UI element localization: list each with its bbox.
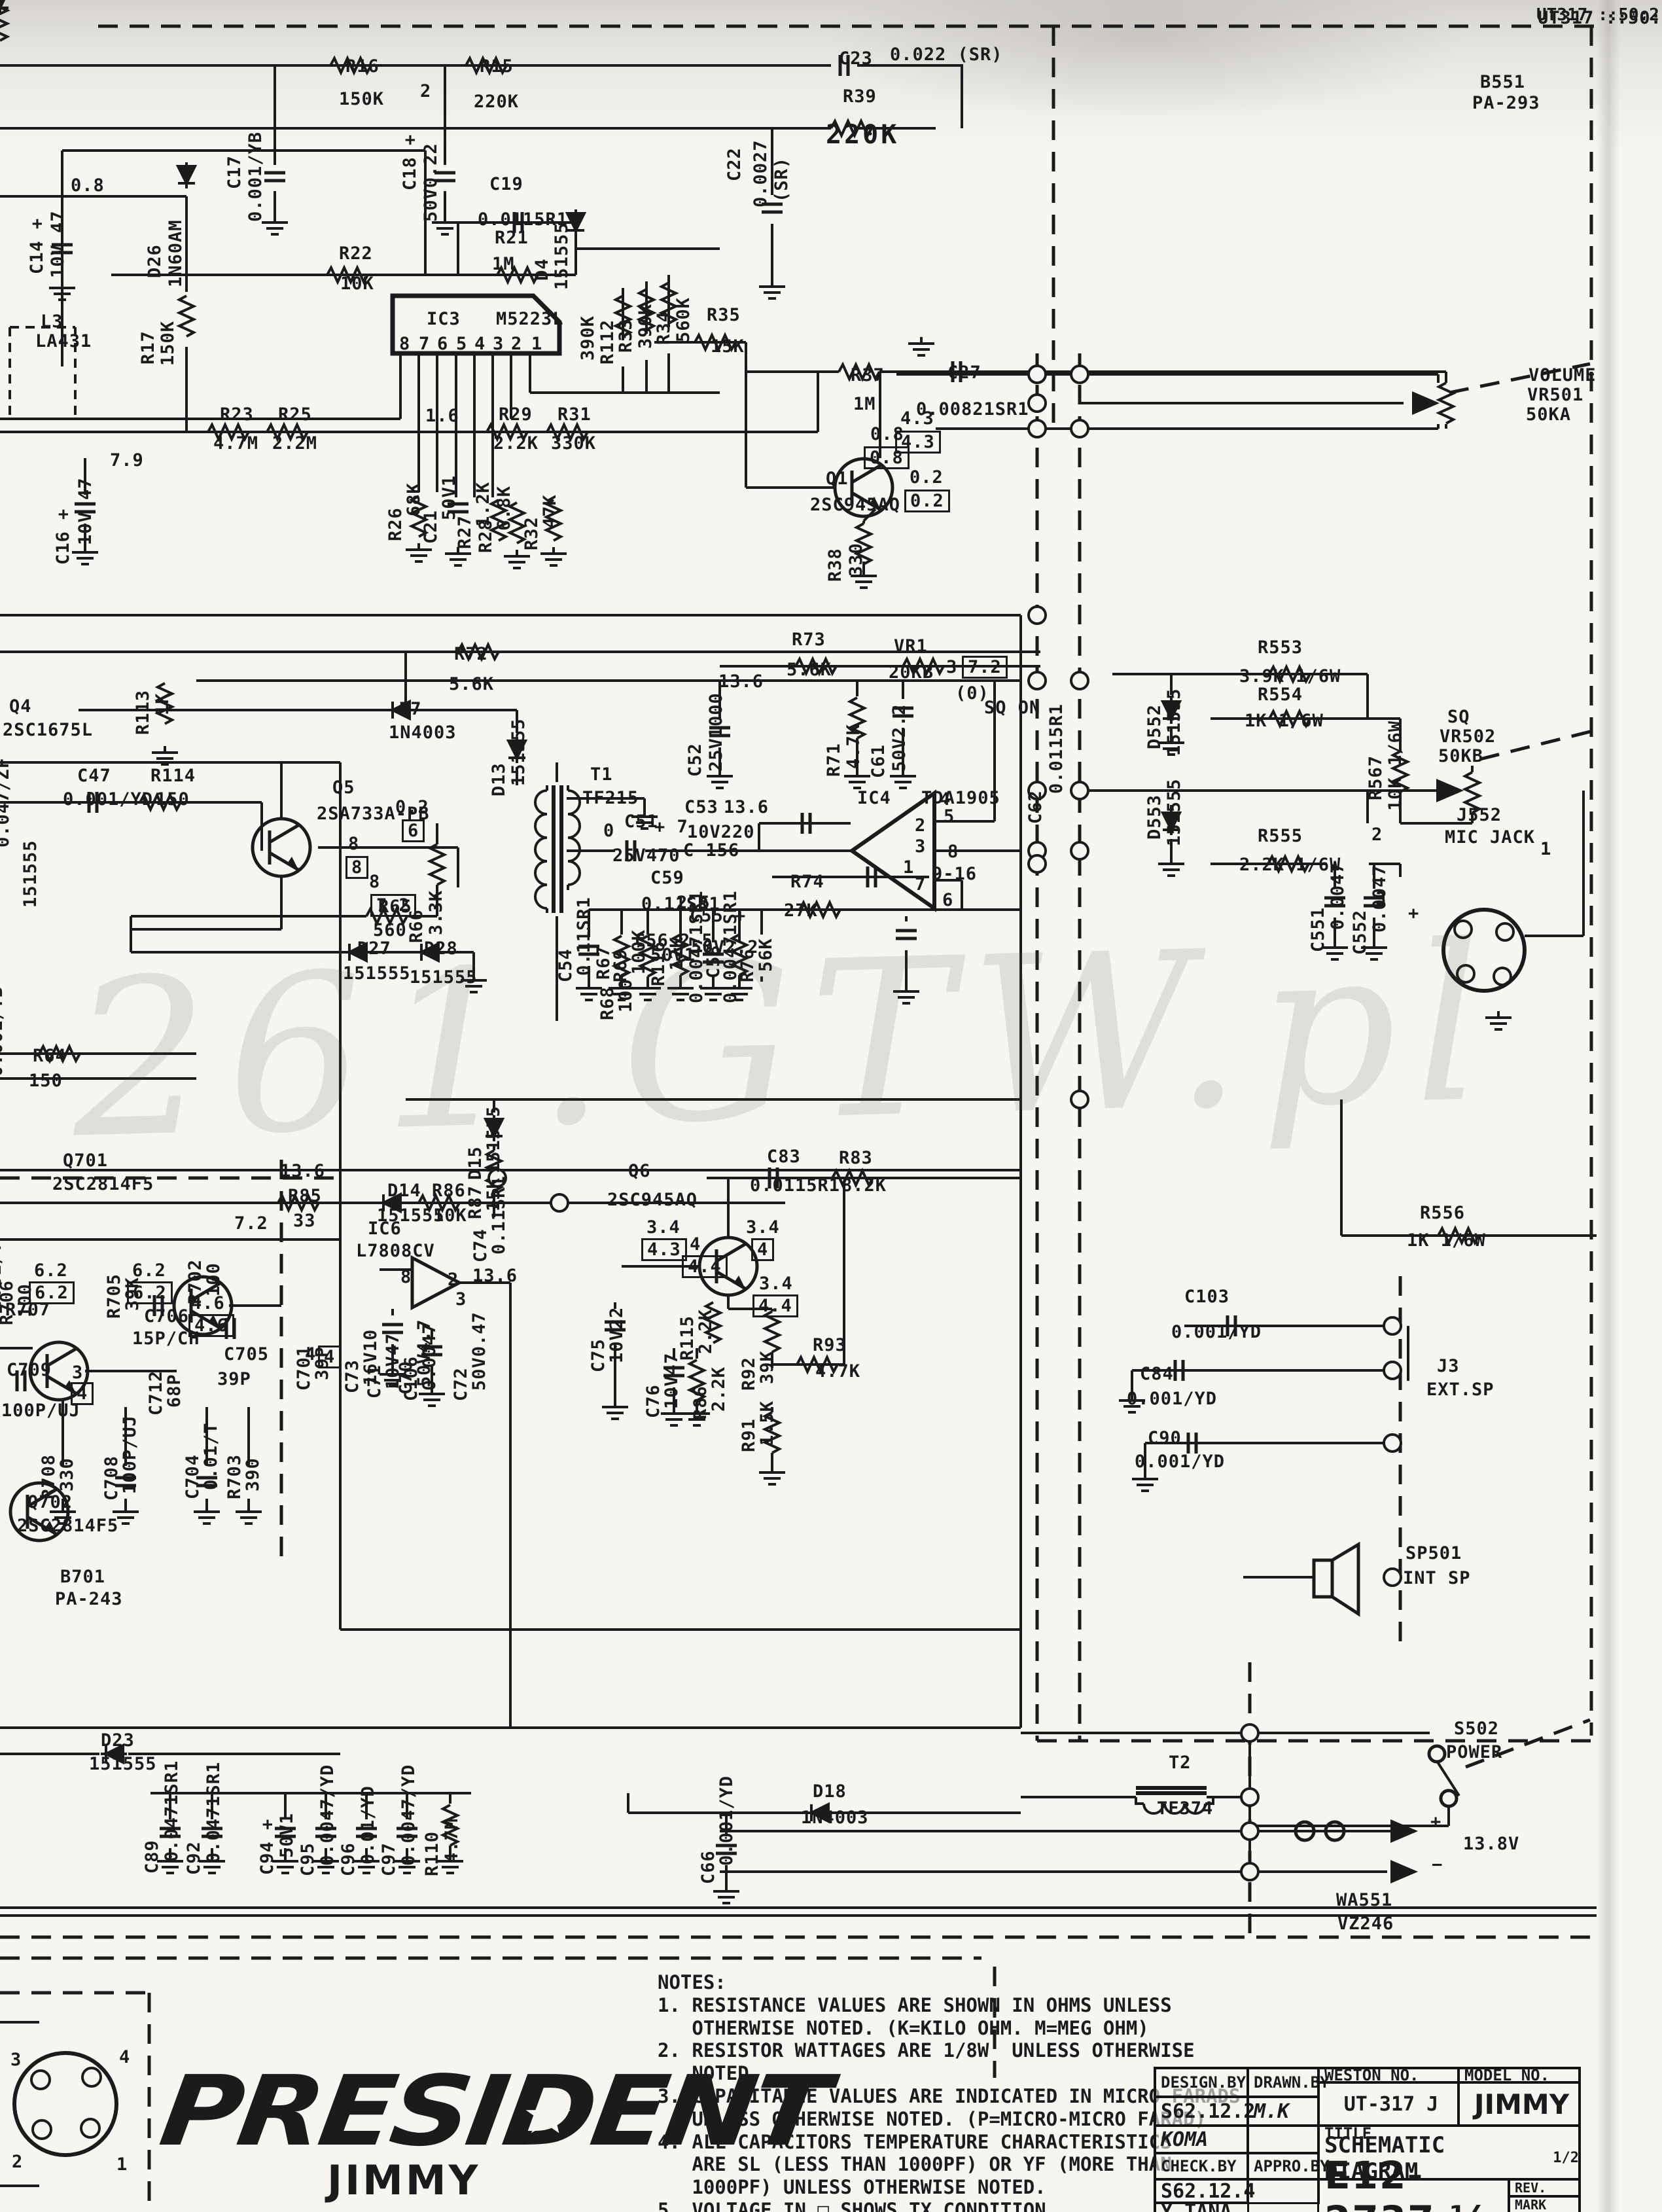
component-label: 1M	[492, 255, 515, 273]
component-label: 0.0471SR1	[163, 1760, 181, 1862]
component-label: C92	[185, 1841, 203, 1875]
component-label: 0.001/YB	[0, 986, 5, 1077]
component-label: INT SP	[1403, 1569, 1471, 1587]
component-label: C95	[299, 1842, 317, 1876]
component-label: R83	[839, 1149, 873, 1167]
component-label: 0.11SR1	[490, 1175, 508, 1255]
component-label: D15	[467, 1146, 484, 1180]
component-label: 9-16	[932, 865, 977, 883]
component-label: 0.0471SR1	[205, 1762, 222, 1863]
component-label: R17	[139, 330, 157, 365]
component-label: T1	[590, 766, 613, 783]
component-label: R38	[826, 548, 844, 582]
component-label: 50V1	[278, 1813, 296, 1858]
component-label: + 7	[654, 818, 688, 836]
component-label: 0.022 (SR)	[890, 46, 1003, 63]
component-label: R71	[825, 743, 843, 777]
component-label: 13.6	[718, 673, 764, 690]
component-label: R553	[1258, 639, 1303, 656]
component-label: 4.7M	[443, 1818, 461, 1863]
component-label: C712	[147, 1370, 165, 1416]
tb-blank	[1246, 2124, 1320, 2154]
component-label: 10K	[433, 1207, 467, 1224]
component-label: 5	[456, 335, 467, 353]
component-label: R110	[423, 1831, 441, 1876]
component-label: VR501	[1527, 386, 1583, 404]
component-label: 0.0047	[421, 1323, 438, 1391]
component-label: 25V470	[612, 847, 681, 865]
component-label: 10V47	[384, 1333, 402, 1389]
component-label: 6.2	[127, 1281, 173, 1304]
component-label: C51	[624, 813, 658, 830]
component-label: 50V0.22	[422, 143, 440, 222]
component-label: 1.5K	[758, 1400, 776, 1446]
component-label: 1K 1/6W	[1407, 1232, 1486, 1249]
component-label: C-156	[683, 842, 739, 859]
component-label: 2SC1675L	[3, 721, 93, 739]
component-label: 3.4	[759, 1275, 793, 1293]
component-label: B551	[1480, 73, 1525, 91]
logo-d: D★	[496, 2055, 600, 2167]
component-label: 13.6	[280, 1162, 325, 1180]
component-label: 0.047/ZF	[0, 757, 12, 847]
component-label: 0	[603, 822, 614, 840]
component-label: 4.6	[188, 1314, 234, 1337]
component-label: 7	[915, 876, 926, 893]
component-label: R705	[105, 1274, 123, 1319]
component-label: 50V2.2	[691, 938, 759, 956]
component-label: D26	[146, 244, 164, 278]
component-label: C89	[143, 1840, 161, 1874]
component-label: R22	[339, 245, 373, 262]
component-label: 68K	[405, 482, 423, 516]
component-label: 10V47	[663, 1353, 681, 1409]
component-label: R555	[1258, 827, 1303, 845]
component-label: C47	[77, 767, 111, 785]
note-line: 1000PF) UNLESS OTHERWISE NOTED.	[658, 2176, 1155, 2199]
component-label: 0.0115R1	[1048, 704, 1065, 794]
component-label: R29	[499, 406, 533, 423]
component-label: R554	[1258, 686, 1303, 704]
component-label: 6.8K	[495, 486, 513, 531]
component-label: R114	[150, 767, 196, 785]
component-label: 1	[116, 2156, 128, 2173]
component-label: 8	[369, 873, 380, 891]
component-label: 0.001/YD	[1135, 1453, 1225, 1471]
component-label: 1.6	[425, 407, 459, 425]
component-label: C71	[366, 1365, 383, 1399]
component-label: C83	[767, 1148, 801, 1166]
component-label: 7.9	[110, 452, 144, 469]
tb-drawn-by-label: DRAWN.BY	[1246, 2067, 1320, 2098]
component-label: D13	[490, 762, 508, 796]
component-label: 8	[345, 856, 368, 879]
component-label: 0.2	[904, 490, 950, 512]
component-label: 151555	[510, 718, 527, 786]
component-label: 3	[915, 838, 926, 855]
tb-mark-label: MARK	[1508, 2195, 1581, 2212]
component-label: R91	[740, 1418, 758, 1452]
component-label: 6	[942, 891, 953, 909]
component-label: 5.6K	[787, 661, 832, 679]
title-block: DESIGN.BY DRAWN.BY WESTON NO. MODEL NO. …	[1154, 2067, 1581, 2212]
component-label: 6.2	[34, 1262, 68, 1279]
component-label: C55 +	[690, 907, 746, 925]
component-label: C62	[1027, 790, 1044, 824]
component-label: 20KB	[889, 664, 934, 681]
component-label: UT317 ::50:2	[1538, 9, 1662, 27]
component-label: 3.4	[646, 1219, 681, 1236]
component-label: 3	[455, 1291, 467, 1308]
component-label: R67	[595, 946, 612, 980]
logo-text-pre: PRESI	[154, 2055, 512, 2167]
component-label: 1	[1540, 840, 1551, 858]
component-label: R37	[851, 366, 885, 384]
component-label: R113	[134, 690, 152, 735]
component-label: 2.2M	[272, 435, 317, 452]
component-label: 0.001/YD	[1171, 1323, 1262, 1341]
component-label: C52	[686, 743, 704, 777]
component-label: 13.6	[472, 1267, 518, 1285]
component-label: 15K	[711, 338, 745, 355]
component-label: C18 +	[401, 134, 419, 190]
component-label: C704	[184, 1454, 202, 1499]
component-label: 150	[156, 791, 190, 808]
component-label: R69	[612, 948, 629, 982]
component-label: 390K	[637, 304, 654, 349]
component-label: 8	[947, 843, 959, 861]
component-label: 39K	[758, 1350, 776, 1384]
component-label: 4.7K	[845, 724, 862, 769]
component-label: D23	[101, 1732, 135, 1749]
component-label: Q1	[826, 470, 849, 488]
component-label: 150K	[339, 90, 384, 108]
tb-check-by-label: CHECK.BY	[1154, 2152, 1249, 2181]
component-label: 2SC945AQ	[810, 496, 900, 514]
component-label: MIC JACK	[1445, 829, 1535, 846]
tb-drawn-init: M.K	[1246, 2096, 1320, 2127]
component-label: 1	[903, 859, 914, 876]
component-label: TDA1905	[921, 789, 1000, 807]
component-label: 0.0047	[1329, 862, 1347, 930]
component-label: S502	[1454, 1720, 1499, 1738]
component-label: 13.6	[724, 798, 769, 816]
component-label: R28	[477, 519, 495, 553]
note-line: 5. VOLTAGE IN □ SHOWS TX CONDITION.	[658, 2199, 1155, 2212]
component-label: 0.0047/YD	[319, 1764, 336, 1866]
component-label: 2	[1371, 826, 1383, 844]
tb-weston-no: UT-317 J	[1317, 2081, 1460, 2127]
component-label: C23	[839, 50, 873, 67]
component-label: 100P/UJ	[1, 1402, 80, 1419]
component-label: R31	[557, 406, 592, 423]
component-label: 1K	[154, 692, 171, 715]
component-label: 2.2K	[493, 435, 539, 452]
tb-blank2	[1246, 2178, 1320, 2204]
component-label: 151555	[22, 840, 39, 908]
component-label: 4	[318, 1346, 341, 1368]
component-label: 560	[373, 921, 407, 939]
component-label: C551	[1309, 907, 1327, 952]
component-label: 10K 1/6W	[1387, 721, 1404, 811]
component-label: 13.8V	[1463, 1835, 1519, 1853]
component-label: 390K	[579, 315, 597, 361]
component-label: 3	[72, 1364, 83, 1382]
component-label: 330	[58, 1457, 76, 1491]
component-label: C66	[699, 1850, 717, 1884]
component-label: 4.3	[900, 410, 934, 427]
component-label: 1N4003	[801, 1809, 869, 1827]
component-label: 2	[915, 817, 926, 834]
component-label: R33	[617, 319, 635, 353]
component-label: 2SC945AQ	[607, 1191, 698, 1209]
tb-checker: Y.TANA	[1154, 2202, 1249, 2212]
component-label: 7.2	[234, 1215, 268, 1232]
component-label: C61	[870, 744, 887, 778]
component-label: R32	[523, 516, 540, 550]
component-label: 3.4	[746, 1219, 780, 1236]
component-label: C14 +	[28, 218, 46, 274]
component-label: 1K 1/6W	[1245, 712, 1324, 730]
star-icon: ★	[517, 2086, 578, 2145]
component-label: 4.4	[752, 1294, 798, 1317]
component-label: R15	[480, 58, 514, 75]
component-label: 25V1000	[707, 692, 725, 772]
component-label: C94 +	[258, 1819, 276, 1875]
component-label: IC3	[427, 310, 461, 328]
component-label: 50KA	[1526, 406, 1571, 423]
component-label: 0.0047	[1371, 865, 1388, 933]
component-label: 151555	[410, 969, 478, 986]
component-label: 10V 47	[49, 210, 67, 278]
component-label: 0.0115R1	[750, 1177, 840, 1194]
component-label: 7	[419, 335, 430, 353]
component-label: 5.6K	[449, 675, 494, 693]
component-label: R703	[226, 1454, 243, 1499]
component-label: C59	[650, 869, 684, 887]
component-label: 6.2	[132, 1262, 166, 1279]
logo-text-post: ENT	[584, 2055, 832, 2167]
component-label: M5223L	[496, 310, 564, 328]
component-label: 1M	[853, 395, 876, 413]
component-label: R92	[740, 1357, 758, 1391]
tb-design-by-label: DESIGN.BY	[1154, 2067, 1249, 2098]
component-label: 560K	[675, 297, 692, 342]
component-label: R35	[707, 306, 741, 324]
component-label: 3	[946, 658, 957, 676]
component-label: 5	[944, 808, 955, 825]
component-label: 8.2K	[841, 1177, 887, 1194]
component-label: R74	[790, 873, 824, 891]
component-label: 0.001/YD	[718, 1775, 735, 1866]
component-label: IC6	[368, 1220, 402, 1238]
component-label: Q4	[9, 698, 32, 715]
component-label: 2.2K 1/6W	[1239, 856, 1341, 874]
component-label: 150	[29, 1072, 63, 1090]
component-label: R85	[288, 1187, 322, 1205]
component-label: 2	[448, 1271, 459, 1289]
component-label: 1	[531, 335, 542, 353]
component-label: R27	[456, 515, 474, 549]
component-label: 8	[348, 835, 359, 853]
component-label: 10K	[340, 275, 374, 293]
component-label: C27	[947, 364, 981, 382]
component-label: LA431	[35, 332, 92, 350]
schematic-page: 261.GTW.pl	[0, 0, 1662, 2212]
component-label: 4	[305, 1346, 316, 1363]
component-label: 2.2K	[710, 1366, 728, 1412]
component-label: +	[1430, 1813, 1441, 1830]
component-label: D27	[357, 940, 391, 957]
component-label: R556	[1420, 1204, 1465, 1222]
component-label: C97	[380, 1842, 398, 1876]
component-label: Q6	[628, 1162, 651, 1180]
component-label: 151555	[89, 1755, 157, 1773]
component-label: 2	[12, 2153, 23, 2171]
model-name: JIMMY	[327, 2156, 480, 2204]
note-line: NOTES:	[658, 1971, 1155, 1994]
component-label: C106	[402, 1356, 420, 1401]
component-label: 1N60AM	[167, 219, 185, 287]
component-label: L7808CV	[356, 1242, 435, 1260]
component-label: C705	[224, 1346, 269, 1363]
component-label: 56K	[757, 938, 775, 972]
component-label: 2.2K	[697, 1309, 715, 1354]
component-label: SQ	[1447, 708, 1470, 726]
component-label: 0.2	[910, 469, 944, 486]
component-label: 8	[400, 1268, 412, 1286]
component-label: WA551	[1336, 1891, 1392, 1909]
component-label: 50V0.47	[470, 1311, 488, 1391]
component-label: 151555	[553, 222, 571, 290]
brand-logo: PRESID★ENT	[154, 2055, 832, 2167]
component-label: VOLUME	[1529, 366, 1597, 384]
component-label: J3	[1437, 1357, 1460, 1375]
component-label: 151555	[343, 965, 411, 982]
component-label: 50V2.2	[891, 704, 908, 772]
component-label: 50V1	[440, 475, 458, 520]
component-label: 8	[399, 335, 410, 353]
component-label: 10V22	[608, 1307, 626, 1363]
component-label: 4.4	[682, 1255, 728, 1278]
component-label: 7.2	[962, 656, 1008, 679]
component-label: R72	[454, 645, 488, 663]
component-label: (SR)	[773, 157, 790, 202]
component-label: R112	[599, 319, 616, 365]
component-label: 0.01/YD	[359, 1785, 377, 1864]
component-label: C73	[344, 1359, 361, 1393]
component-label: 3.9K 1/6W	[1239, 668, 1341, 685]
component-label: D553	[1146, 794, 1163, 840]
component-label: J552	[1457, 806, 1502, 824]
component-label: 330K	[551, 435, 596, 452]
component-label: 100P/UJ	[121, 1415, 139, 1494]
component-label: D552	[1146, 704, 1163, 749]
component-label: 4.3	[641, 1238, 687, 1261]
component-label: R66	[408, 909, 425, 943]
component-label: 330	[847, 543, 865, 577]
component-label: R87	[467, 1185, 484, 1219]
component-label: 390	[244, 1457, 262, 1491]
component-label: 4	[940, 791, 951, 808]
component-label: TF215	[582, 789, 639, 807]
component-label: C17	[226, 155, 243, 189]
component-label: PA-293	[1472, 94, 1540, 112]
component-label: R25	[278, 406, 312, 423]
component-label: C53	[684, 798, 718, 816]
note-line: OTHERWISE NOTED. (K=KILO OHM. M=MEG OHM)	[658, 2017, 1155, 2040]
component-label: IC4	[857, 789, 891, 807]
component-label: 39P	[217, 1370, 251, 1388]
component-label: Q5	[332, 779, 355, 796]
component-label: 2SC2814F5	[17, 1517, 118, 1535]
component-label: 0.01/T	[202, 1422, 220, 1490]
component-label: 50KB	[1438, 747, 1483, 765]
component-label: R16	[345, 58, 380, 75]
component-label: 151555	[1165, 778, 1183, 846]
component-label: D18	[813, 1783, 847, 1800]
component-label: 0.001/YD	[63, 791, 153, 808]
component-label: R86	[432, 1182, 466, 1200]
component-label: C709	[7, 1361, 52, 1379]
component-label: 3	[493, 335, 504, 353]
component-label: 0.01/T	[0, 1241, 4, 1310]
component-label: 1N4003	[389, 724, 457, 741]
component-label: VR1	[894, 637, 928, 655]
component-label: C76	[645, 1384, 662, 1418]
component-label: TF374	[1157, 1800, 1213, 1817]
component-label: 6	[437, 335, 448, 353]
component-label: C75	[590, 1338, 607, 1372]
component-label: C19	[489, 175, 523, 193]
component-label: T2	[1169, 1754, 1192, 1772]
component-label: VZ246	[1337, 1915, 1394, 1933]
component-label: 4.3	[895, 431, 941, 454]
tb-doc-no: E12-2737 ½	[1317, 2178, 1510, 2212]
component-label: 100	[205, 1262, 222, 1296]
component-label: 6	[402, 819, 425, 842]
component-label: C706	[144, 1308, 189, 1325]
component-label: −	[1432, 1856, 1443, 1874]
component-label: EXT.SP	[1426, 1381, 1494, 1399]
component-label: 151555	[485, 1105, 503, 1173]
component-label: C74	[472, 1228, 489, 1262]
component-label: D4	[533, 258, 551, 281]
component-label: L3	[41, 313, 63, 330]
component-label: 4	[119, 2048, 130, 2066]
component-label: 4	[690, 1236, 701, 1253]
component-label: 0.001/YD	[1127, 1390, 1217, 1408]
component-label: 2SC2814F5	[52, 1175, 154, 1193]
component-label: C96	[340, 1842, 357, 1876]
component-label: 4.6	[191, 1294, 225, 1312]
component-label: R64	[33, 1047, 67, 1065]
tb-model-no: JIMMY	[1457, 2081, 1581, 2127]
component-label: 0.0047/YD	[400, 1764, 417, 1866]
component-label: B701	[60, 1568, 105, 1586]
component-label: 100	[617, 978, 635, 1012]
component-label: R39	[843, 88, 877, 105]
component-label: 0.2	[395, 798, 429, 816]
component-label: C54	[557, 948, 575, 982]
component-label: SQ ON	[984, 699, 1040, 717]
component-label: C84	[1140, 1365, 1174, 1383]
component-label: R86	[692, 1385, 709, 1419]
component-label: C21	[422, 510, 440, 544]
component-label: D14	[387, 1182, 421, 1200]
component-label: 2	[511, 335, 522, 353]
component-label: 4.7M	[213, 435, 258, 452]
